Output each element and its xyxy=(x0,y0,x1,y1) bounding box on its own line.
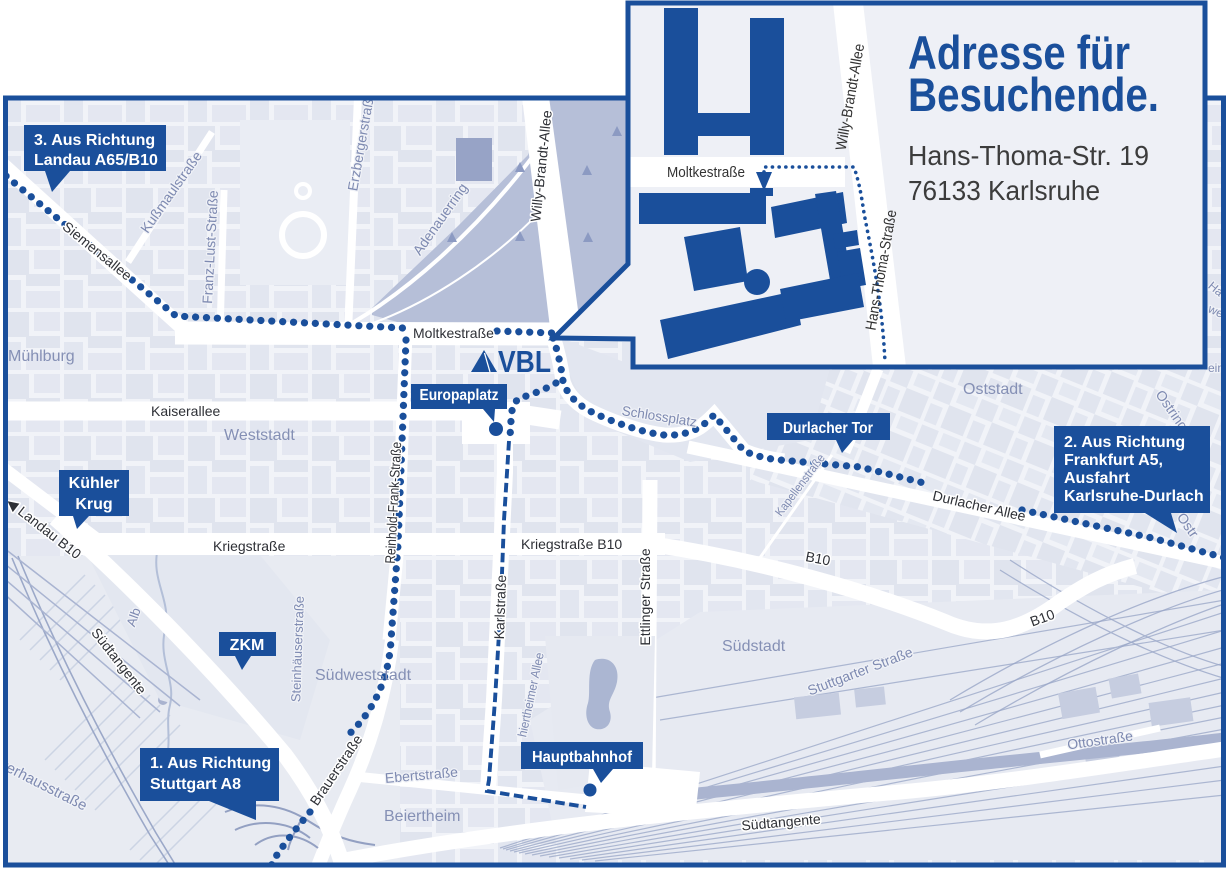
svg-text:Kriegstraße B10: Kriegstraße B10 xyxy=(521,536,622,552)
svg-text:Besuchende.: Besuchende. xyxy=(908,68,1159,121)
svg-text:Kühler: Kühler xyxy=(69,475,120,492)
svg-text:Hans-Thoma-Str. 19: Hans-Thoma-Str. 19 xyxy=(908,140,1149,171)
svg-text:Kaiserallee: Kaiserallee xyxy=(151,403,220,419)
svg-text:Frankfurt A5,: Frankfurt A5, xyxy=(1064,452,1163,469)
svg-text:Stuttgart A8: Stuttgart A8 xyxy=(150,776,241,793)
svg-text:Moltkestraße: Moltkestraße xyxy=(413,325,494,341)
svg-text:3. Aus Richtung: 3. Aus Richtung xyxy=(34,132,155,149)
svg-text:Europaplatz: Europaplatz xyxy=(420,387,499,404)
svg-text:VBL: VBL xyxy=(498,344,551,379)
svg-text:ZKM: ZKM xyxy=(230,637,265,654)
svg-text:2. Aus Richtung: 2. Aus Richtung xyxy=(1064,434,1185,451)
svg-text:Kriegstraße: Kriegstraße xyxy=(213,538,286,554)
svg-text:Südweststadt: Südweststadt xyxy=(315,667,412,684)
svg-text:Moltkestraße: Moltkestraße xyxy=(667,164,745,181)
svg-text:Weststadt: Weststadt xyxy=(224,427,295,444)
svg-text:76133 Karlsruhe: 76133 Karlsruhe xyxy=(908,175,1100,206)
svg-text:Oststadt: Oststadt xyxy=(963,381,1023,398)
svg-text:Durlacher Tor: Durlacher Tor xyxy=(783,420,873,437)
svg-text:Krug: Krug xyxy=(75,496,112,513)
svg-text:Landau A65/B10: Landau A65/B10 xyxy=(34,152,158,169)
svg-text:Ettlinger Straße: Ettlinger Straße xyxy=(637,548,653,645)
svg-text:1. Aus Richtung: 1. Aus Richtung xyxy=(150,755,271,772)
svg-text:Karlstraße: Karlstraße xyxy=(491,574,509,639)
svg-text:Südstadt: Südstadt xyxy=(722,638,786,655)
svg-text:Mühlburg: Mühlburg xyxy=(8,348,75,365)
svg-text:Beiertheim: Beiertheim xyxy=(384,808,460,825)
svg-text:Karlsruhe-Durlach: Karlsruhe-Durlach xyxy=(1064,488,1204,505)
svg-text:Ausfahrt: Ausfahrt xyxy=(1064,470,1130,487)
svg-text:Hauptbahnhof: Hauptbahnhof xyxy=(532,749,633,766)
